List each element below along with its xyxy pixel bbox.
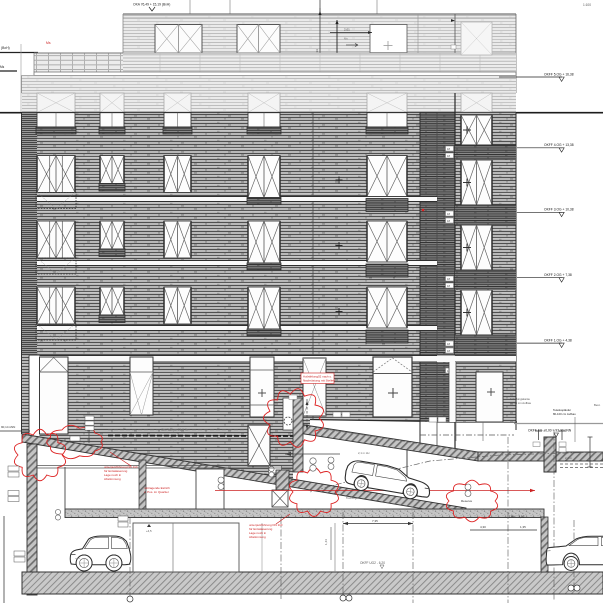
svg-text:OK Rampe 15,0 %: OK Rampe 15,0 %	[161, 428, 188, 432]
svg-text:2,1 m üH: 2,1 m üH	[358, 451, 369, 455]
svg-text:LRH - 3,96: LRH - 3,96	[509, 515, 525, 519]
svg-text:1,35: 1,35	[520, 525, 526, 529]
svg-text:4,30: 4,30	[480, 525, 486, 529]
svg-text:OKFF 3.OG + 10,38: OKFF 3.OG + 10,38	[544, 208, 574, 212]
svg-text:Abstimmung: Abstimmung	[104, 477, 121, 481]
svg-text:Reserve: Reserve	[461, 499, 473, 503]
svg-text:80-100 cm Aufbau: 80-100 cm Aufbau	[553, 412, 576, 416]
svg-text:2,01: 2,01	[344, 28, 350, 32]
svg-text:OKA 76,49 + 15,19 (BxH): OKA 76,49 + 15,19 (BxH)	[133, 3, 170, 7]
svg-text:OKFF 1.OG + 4,38: OKFF 1.OG + 4,38	[544, 339, 572, 343]
svg-text:Trennfuge: Trennfuge	[346, 496, 358, 500]
svg-text:(BxH): (BxH)	[1, 46, 10, 50]
svg-text:+4,5: +4,5	[146, 529, 152, 533]
svg-text:Best.: Best.	[594, 403, 601, 407]
svg-text:1,44: 1,44	[324, 539, 328, 545]
svg-text:OKFF 5.OG + 16,38: OKFF 5.OG + 16,38	[544, 72, 574, 76]
svg-text:OKFF EG ±0,00 = 93,30 üNN: OKFF EG ±0,00 = 93,30 üNN	[528, 429, 572, 433]
svg-text:7,35: 7,35	[372, 519, 378, 523]
svg-text:OKFF UG2 - 6,20: OKFF UG2 - 6,20	[360, 561, 385, 565]
svg-text:OKFF 4.OG + 13,38: OKFF 4.OG + 13,38	[544, 143, 574, 147]
svg-text:Nachrüstung mit Stellen: Nachrüstung mit Stellen	[303, 379, 335, 383]
svg-text:1:100: 1:100	[583, 3, 591, 7]
svg-text:Abstimmung: Abstimmung	[249, 535, 266, 539]
svg-text:Ms: Ms	[46, 41, 51, 45]
svg-text:90,14 üNN: 90,14 üNN	[1, 425, 15, 429]
svg-text:s. Pos. im Quartier: s. Pos. im Quartier	[144, 490, 169, 494]
svg-text:30-50 cm Aufbau: 30-50 cm Aufbau	[510, 401, 532, 405]
svg-text:M: M	[258, 444, 260, 448]
svg-text:2,1 m: 2,1 m	[565, 456, 573, 460]
svg-text:Ms: Ms	[0, 65, 5, 69]
svg-text:Ms: Ms	[344, 37, 348, 41]
svg-text:OKFF 2.OG + 7,38: OKFF 2.OG + 7,38	[544, 273, 572, 277]
